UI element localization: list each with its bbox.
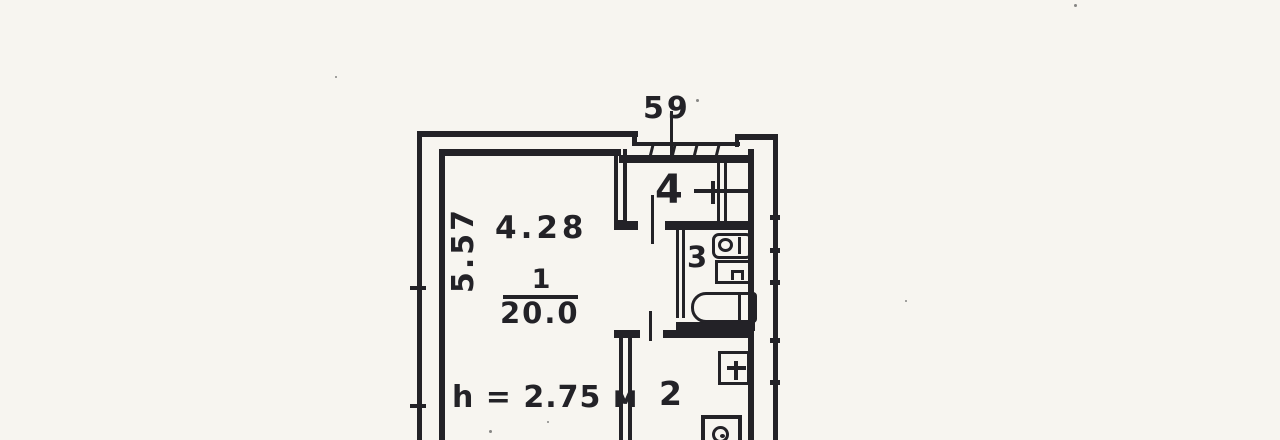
basin-inner-icon bbox=[731, 270, 744, 280]
stove-burner-icon bbox=[712, 426, 729, 440]
door-opening-mark bbox=[651, 195, 654, 244]
wall-hall-partition bbox=[676, 230, 679, 318]
wall-outer-right bbox=[773, 134, 778, 440]
wall-tick bbox=[770, 248, 780, 253]
room4-number-label: 4 bbox=[655, 170, 683, 210]
sink-tap-icon bbox=[727, 366, 746, 370]
floor-plan-scan: 59 4 3 2 4.28 5.57 1 20.0 h = 2.75 м bbox=[0, 0, 1280, 440]
scan-speckle bbox=[489, 430, 492, 433]
wall-tick bbox=[770, 215, 780, 220]
vent-cross-mark bbox=[711, 181, 715, 204]
wall-room2-top bbox=[614, 330, 640, 338]
wall-room4-right bbox=[724, 161, 727, 227]
toilet-icon bbox=[712, 233, 753, 259]
scan-speckle bbox=[905, 300, 907, 302]
stove-icon bbox=[701, 415, 742, 440]
scan-speckle bbox=[696, 99, 699, 102]
bathtub-divider-icon bbox=[738, 295, 741, 320]
wall-outer-step bbox=[735, 134, 739, 147]
wall-outer-top-right bbox=[737, 134, 778, 140]
wall-tick bbox=[770, 280, 780, 285]
wall-hall-partition bbox=[682, 230, 685, 318]
sink-tap-icon bbox=[734, 361, 738, 380]
door-opening-mark bbox=[649, 311, 652, 341]
kitchen-sink-icon bbox=[718, 351, 750, 385]
room2-number-label: 2 bbox=[659, 377, 682, 410]
wall-tick bbox=[770, 380, 780, 385]
wall-entry-recess bbox=[632, 142, 740, 146]
wash-basin-icon bbox=[715, 260, 753, 284]
toilet-tank-icon bbox=[738, 237, 741, 254]
dimension-tick bbox=[410, 286, 426, 290]
toilet-bowl-icon bbox=[718, 238, 733, 252]
wall-tick bbox=[770, 338, 780, 343]
ceiling-height-label: h = 2.75 м bbox=[452, 383, 638, 413]
wall-inner-left bbox=[439, 149, 445, 440]
wall-room4-top bbox=[619, 155, 748, 163]
stove-burner-dot bbox=[720, 434, 725, 438]
wall-room2-top bbox=[663, 330, 754, 338]
room1-area-label: 20.0 bbox=[500, 299, 580, 328]
bathtub-icon bbox=[691, 292, 757, 323]
dimension-tick bbox=[410, 404, 426, 408]
apartment-number-label: 59 bbox=[643, 94, 691, 124]
room1-depth-dimension: 5.57 bbox=[449, 197, 493, 303]
wall-room1-right bbox=[614, 149, 618, 227]
scan-speckle bbox=[1074, 4, 1077, 7]
wall-room4-bottom bbox=[665, 221, 754, 230]
vent-cross-mark bbox=[694, 189, 752, 193]
room3-number-label: 3 bbox=[687, 243, 707, 272]
wall-room4-right bbox=[717, 161, 720, 227]
wall-room1-top bbox=[439, 149, 621, 156]
room1-width-dimension: 4.28 bbox=[495, 213, 588, 244]
room1-number-label: 1 bbox=[509, 266, 573, 293]
wall-outer-top-left bbox=[417, 131, 638, 137]
scan-speckle bbox=[547, 421, 549, 423]
scan-speckle bbox=[335, 76, 337, 78]
wall-room4-bottom bbox=[614, 221, 638, 230]
